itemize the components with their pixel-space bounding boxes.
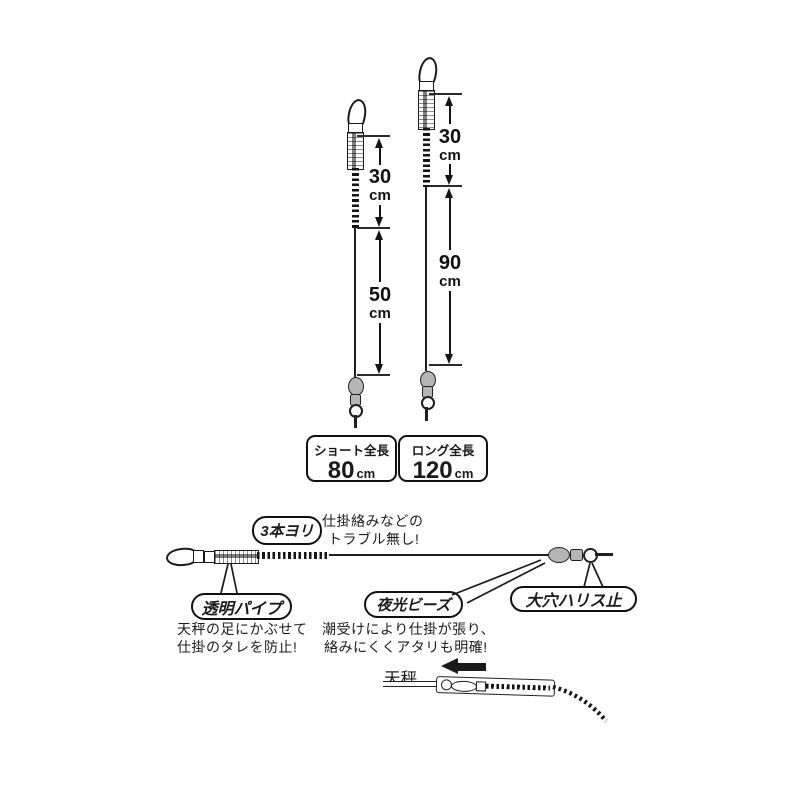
dim-line [449, 197, 451, 250]
dim-arrow-down-icon [375, 217, 383, 227]
swivel-body [570, 549, 583, 561]
dim-tick [429, 93, 462, 95]
long-total-box: ロング全長 120cm [398, 435, 488, 482]
dim-label-30cm: 30 cm [428, 127, 472, 163]
dim-tick [429, 364, 462, 366]
dim-arrow-down-icon [445, 175, 453, 185]
dim-label-90cm: 90 cm [428, 253, 472, 289]
main-line [425, 187, 427, 371]
pipe-note-line2: 仕掛のタレを防止! [177, 638, 297, 657]
long-total-value: 120cm [400, 459, 486, 483]
twisted-line-in-pipe [486, 683, 550, 691]
dim-value: 90 [428, 253, 472, 273]
callout-pipe-label: 透明パイプ [201, 595, 281, 619]
main-line [329, 554, 549, 556]
callout-stopper-label: 大穴ハリス止 [525, 587, 621, 611]
beads-note-line1: 潮受けにより仕掛が張り、 [322, 620, 495, 639]
callout-pipe: 透明パイプ [191, 593, 292, 620]
clear-pipe [214, 550, 259, 564]
line-stub [354, 415, 357, 428]
stopper-pointer-line [584, 563, 590, 587]
dim-unit: cm [358, 306, 402, 321]
clear-pipe [418, 90, 435, 130]
dim-value: 50 [358, 285, 402, 305]
dim-unit: cm [428, 274, 472, 289]
total-unit: cm [455, 466, 474, 481]
luminous-bead [548, 547, 570, 563]
twisted-line [257, 552, 329, 559]
total-unit: cm [356, 466, 375, 481]
beads-note-line2: 絡みにくくアタリも明確! [324, 638, 488, 657]
dim-tick [357, 374, 390, 376]
direction-arrow-shaft [456, 663, 486, 671]
dim-arrow-down-icon [445, 354, 453, 364]
stopper-ring [583, 548, 598, 563]
twist-note-line1: 仕掛絡みなどの [322, 512, 424, 531]
stopper-pointer-line [592, 563, 603, 587]
dim-line [379, 239, 381, 282]
snap-clip-icon [451, 680, 477, 692]
short-total-value: 80cm [308, 459, 395, 483]
dim-label-50cm: 50 cm [358, 285, 402, 321]
snap-collar [193, 550, 204, 563]
dim-label-30cm: 30 cm [358, 167, 402, 203]
tenbin-leg [383, 681, 438, 687]
twist-note-line2: トラブル無し! [328, 530, 419, 549]
dim-line [449, 164, 451, 175]
dim-tick [357, 135, 390, 137]
clear-pipe [347, 132, 364, 170]
total-number: 80 [328, 457, 355, 484]
pipe-note-line1: 天秤の足にかぶせて [177, 620, 308, 639]
dim-line [449, 291, 451, 354]
dim-value: 30 [428, 127, 472, 147]
dim-tick [429, 185, 462, 187]
dim-tick [357, 227, 390, 229]
line-stub [425, 407, 428, 421]
dim-unit: cm [358, 188, 402, 203]
total-number: 120 [413, 457, 453, 484]
callout-twist-label: 3本ヨリ [260, 520, 313, 541]
line-stub [595, 553, 613, 556]
snap-collar [476, 681, 486, 691]
fishing-rig-diagram: 30 cm 50 cm [0, 0, 800, 800]
main-line [354, 228, 356, 378]
callout-beads-label: 夜光ビーズ [376, 594, 450, 615]
callout-stopper: 大穴ハリス止 [510, 586, 637, 612]
callout-beads: 夜光ビーズ [364, 591, 463, 618]
dim-value: 30 [358, 167, 402, 187]
pipe-over-tenbin [436, 676, 555, 697]
short-total-box: ショート全長 80cm [306, 435, 397, 482]
dim-line [449, 105, 451, 124]
callout-twist: 3本ヨリ [252, 516, 322, 545]
dim-unit: cm [428, 148, 472, 163]
dim-arrow-down-icon [375, 364, 383, 374]
swivel-ring [421, 396, 435, 410]
pipe-pointer-line [221, 564, 228, 593]
dim-line [379, 147, 381, 165]
dim-line [379, 323, 381, 364]
pipe-pointer-line [231, 564, 237, 593]
twisted-line-curve [553, 687, 606, 721]
